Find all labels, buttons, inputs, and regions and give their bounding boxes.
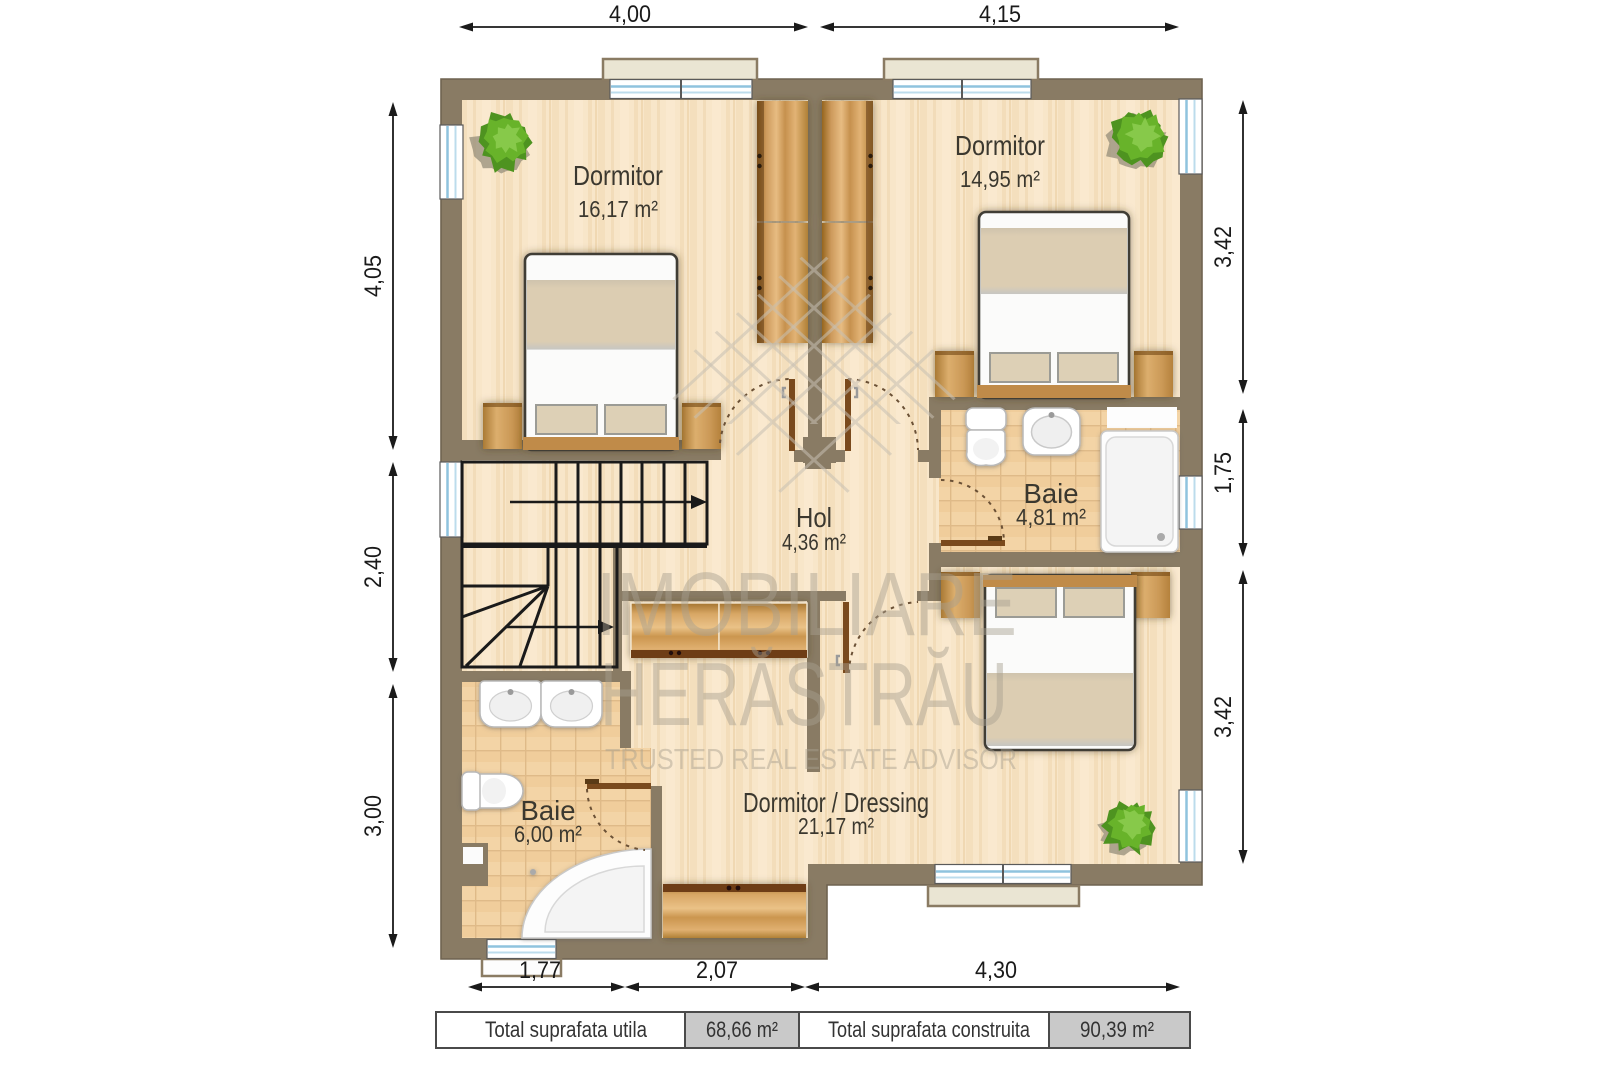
svg-text:2,07: 2,07 <box>696 957 738 984</box>
svg-text:3,00: 3,00 <box>360 795 387 837</box>
svg-text:3,42: 3,42 <box>1210 226 1237 268</box>
svg-text:4,15: 4,15 <box>979 1 1021 28</box>
svg-text:4,81 m²: 4,81 m² <box>1016 504 1086 530</box>
svg-text:4,30: 4,30 <box>975 957 1017 984</box>
svg-text:68,66 m²: 68,66 m² <box>706 1017 778 1042</box>
svg-text:HERĂSTRĂU: HERĂSTRĂU <box>600 645 1008 745</box>
svg-text:4,36 m²: 4,36 m² <box>782 529 846 555</box>
svg-text:Dormitor: Dormitor <box>955 130 1045 161</box>
svg-text:1,75: 1,75 <box>1210 452 1237 494</box>
svg-text:6,00 m²: 6,00 m² <box>514 821 582 847</box>
svg-text:TRUSTED REAL ESTATE ADVISOR: TRUSTED REAL ESTATE ADVISOR <box>605 744 1017 776</box>
svg-text:Total suprafata utila: Total suprafata utila <box>485 1017 648 1042</box>
svg-text:4,00: 4,00 <box>609 1 651 28</box>
svg-text:21,17 m²: 21,17 m² <box>798 813 874 839</box>
svg-text:1,77: 1,77 <box>519 957 561 984</box>
svg-text:90,39 m²: 90,39 m² <box>1080 1017 1154 1042</box>
svg-text:14,95 m²: 14,95 m² <box>960 166 1040 192</box>
svg-text:4,05: 4,05 <box>360 255 387 297</box>
svg-text:Total suprafata construita: Total suprafata construita <box>828 1017 1031 1042</box>
svg-text:2,40: 2,40 <box>360 546 387 588</box>
svg-text:16,17 m²: 16,17 m² <box>578 196 658 222</box>
svg-text:Dormitor: Dormitor <box>573 160 663 191</box>
svg-text:IMOBILIARE: IMOBILIARE <box>596 555 1017 655</box>
svg-text:3,42: 3,42 <box>1210 696 1237 738</box>
